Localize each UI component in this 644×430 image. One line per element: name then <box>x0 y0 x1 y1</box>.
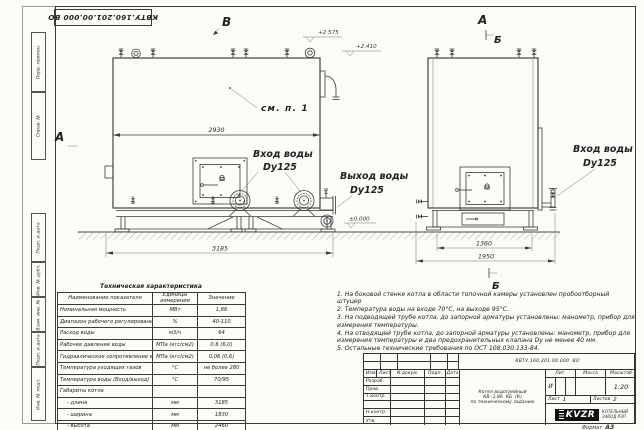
callout-inlet-front-label: Вход воды <box>253 149 313 160</box>
callout-inlet-side-dn: Dy125 <box>583 158 617 169</box>
callout-inlet-side-label: Вход воды <box>573 144 633 155</box>
sheets-label: Листов <box>591 397 610 402</box>
note-item: 4. На отводящей трубе котла, до запорной… <box>337 330 635 345</box>
role-empty-cell <box>446 401 460 409</box>
role-empty-cell <box>425 417 446 425</box>
role-empty-cell <box>425 401 446 409</box>
inlet-flanges-front <box>229 191 315 217</box>
tech-col-header: Значение <box>198 293 246 305</box>
title-block: КВТУ.160.201.00.000 ВО Изм. Лист N докум… <box>363 353 635 424</box>
role-empty-cell <box>425 378 446 386</box>
sheet-label: Лист <box>546 397 560 402</box>
role-empty-cell <box>446 386 460 394</box>
rev-col-ndoc: N докум. <box>391 370 425 378</box>
company-line: ЗАВОД РЭП <box>602 415 628 420</box>
role-empty-cell <box>446 409 460 417</box>
rev-spare-cell <box>448 354 459 362</box>
rev-spare-cell <box>398 354 431 362</box>
notes-block: 1. На боковой стенке котла в области топ… <box>337 291 635 353</box>
role-empty-cell <box>446 394 460 402</box>
company-cell: KVZR КОТЕЛЬНЫЙ ЗАВОД РЭП <box>546 404 636 425</box>
rev-spare-cell <box>364 362 381 370</box>
air-valve-icons-side <box>434 49 536 58</box>
role-empty-cell <box>391 401 425 409</box>
air-valve-icons-front <box>118 48 315 58</box>
elevation-2410: +2.410 <box>356 44 377 50</box>
tech-row: Температура воды (Вход/выход)°С70/95 <box>58 374 246 386</box>
sheets-num: 2 <box>613 397 617 403</box>
dim-3185: 3185 <box>212 246 228 253</box>
role-empty-cell <box>425 409 446 417</box>
role-gap <box>364 401 391 409</box>
lit-cell-2 <box>556 378 566 396</box>
view-label-a-top: А <box>477 13 487 27</box>
role-nkontr: Н.контр. <box>364 409 391 417</box>
tech-row: Температура уходящих газов°Сне более 280 <box>58 362 246 374</box>
front-view <box>105 48 340 232</box>
scale-value: 1:20 <box>606 378 636 396</box>
note-item: 3. На подводящей трубе котла, до запорно… <box>337 314 635 329</box>
tech-row: Диапазон рабочего регулирования%40-110 <box>58 316 246 328</box>
callout-inlet-front-dn: Dy125 <box>263 162 297 173</box>
callout-outlet-label: Выход воды <box>340 171 409 182</box>
tech-row: - длинамм3185 <box>58 397 246 409</box>
rev-col-data: Дата <box>446 370 460 378</box>
dim-1950: 1950 <box>478 254 494 261</box>
tech-row: - высотамм2460 <box>58 420 246 430</box>
tech-row: Габариты котла <box>58 386 246 398</box>
rev-spare-cell <box>364 354 381 362</box>
drawing-sheet: Перв. примен. Справ. № Подп. и дата Инв.… <box>0 0 644 430</box>
lit-header: Лит. <box>546 370 576 378</box>
role-empty-cell <box>446 378 460 386</box>
side-base <box>427 211 538 231</box>
note-item: 2. Температура воды на входе 70°С, на вы… <box>337 306 635 313</box>
lit-value: И <box>546 378 556 396</box>
role-empty-cell <box>391 386 425 394</box>
dim-2930: 2930 <box>208 127 224 134</box>
elevation-zero: ±0.000 <box>349 217 370 223</box>
tech-row: Рабочее давление водыМПа (кгс/см2)0,6 (6… <box>58 339 246 351</box>
rev-spare-cell <box>381 354 398 362</box>
note-item: 1. На боковой стенке котла в области топ… <box>337 291 635 306</box>
tech-table: Наименование показателя Единицы измерени… <box>57 292 246 430</box>
sheets-cell: Листов 2 <box>591 396 636 404</box>
side-left-valves <box>417 199 428 219</box>
elevation-2575: +2.575 <box>318 30 339 36</box>
tech-col-header: Единицы измерения <box>153 293 198 305</box>
role-empty-cell <box>425 386 446 394</box>
note-item: 5. Остальные технические требования по О… <box>337 345 635 352</box>
kvzr-logo: KVZR <box>555 409 599 421</box>
rev-spare-cell <box>431 354 448 362</box>
format-value: А3 <box>605 424 614 430</box>
section-label-b-top: Б <box>494 35 502 46</box>
scale-header: Масштаб <box>606 370 636 378</box>
burner-block <box>105 166 113 178</box>
tech-row: Номинальная мощностьМВт1,86 <box>58 305 246 317</box>
outlet-pipe-front <box>320 189 336 227</box>
flue-outlet <box>320 71 340 100</box>
front-door <box>193 158 247 204</box>
role-empty-cell <box>391 409 425 417</box>
elevation-marks: +2.575 +2.410 ±0.000 <box>303 30 381 228</box>
side-channel <box>538 128 542 210</box>
tech-col-header: Наименование показателя <box>58 293 153 305</box>
callout-outlet-dn: Dy125 <box>350 185 384 196</box>
drain-valve-icons-front <box>131 196 279 203</box>
sheet-cell: Лист 1 <box>546 396 591 404</box>
tech-row: Гидравлическое сопротивление котлаМПа (к… <box>58 351 246 363</box>
rev-spare-cell <box>398 362 431 370</box>
view-label-a-left: А <box>54 130 64 144</box>
logo-text: KVZR <box>566 410 595 420</box>
mass-value <box>576 378 606 396</box>
rev-col-list: Лист <box>377 370 391 378</box>
side-door <box>456 167 510 210</box>
document-name: Котел водогрейный КВ -1,86 КБ (К) по тех… <box>460 370 546 425</box>
rev-spare-cell <box>381 362 398 370</box>
role-razrab: Разраб. <box>364 378 391 386</box>
mass-header: Масса <box>576 370 606 378</box>
ground <box>78 232 560 240</box>
role-utv: Утв. <box>364 417 391 425</box>
tech-row: - ширинамм1830 <box>58 409 246 421</box>
rev-col-izm: Изм. <box>364 370 377 378</box>
company-name: КОТЕЛЬНЫЙ ЗАВОД РЭП <box>602 410 628 420</box>
dimensions: 2930 3185 1360 1950 <box>106 127 555 264</box>
role-empty-cell <box>391 394 425 402</box>
format-footer: Формат А3 <box>560 424 636 430</box>
format-label: Формат <box>582 425 602 430</box>
title-designation: КВТУ.160.201.00.000 ВО <box>459 354 636 370</box>
sheet-num: 1 <box>563 397 567 403</box>
rev-col-podp: Подп. <box>425 370 446 378</box>
view-label-b: В <box>222 15 231 29</box>
role-prov: Пров. <box>364 386 391 394</box>
role-tkontr: Т.контр. <box>364 394 391 402</box>
role-empty-cell <box>425 394 446 402</box>
role-empty-cell <box>446 417 460 425</box>
side-inlet-valve <box>542 189 557 211</box>
dim-1360: 1360 <box>476 241 492 248</box>
rev-spare-cell <box>431 362 448 370</box>
side-view <box>417 49 557 230</box>
tech-row: Расход водым3/ч64 <box>58 328 246 340</box>
callout-see-note: см. п. 1 <box>261 104 309 114</box>
role-empty-cell <box>391 378 425 386</box>
logo-bars-icon <box>559 410 564 419</box>
callouts: см. п. 1 Вход воды Dy125 Выход воды Dy12… <box>229 87 633 207</box>
tech-table-title: Техническая характеристика <box>57 283 245 290</box>
role-empty-cell <box>391 417 425 425</box>
rev-spare-cell <box>448 362 459 370</box>
doc-name-line3: по техническому заданию <box>471 400 535 405</box>
front-base <box>115 211 335 232</box>
lit-cell-3 <box>566 378 576 396</box>
